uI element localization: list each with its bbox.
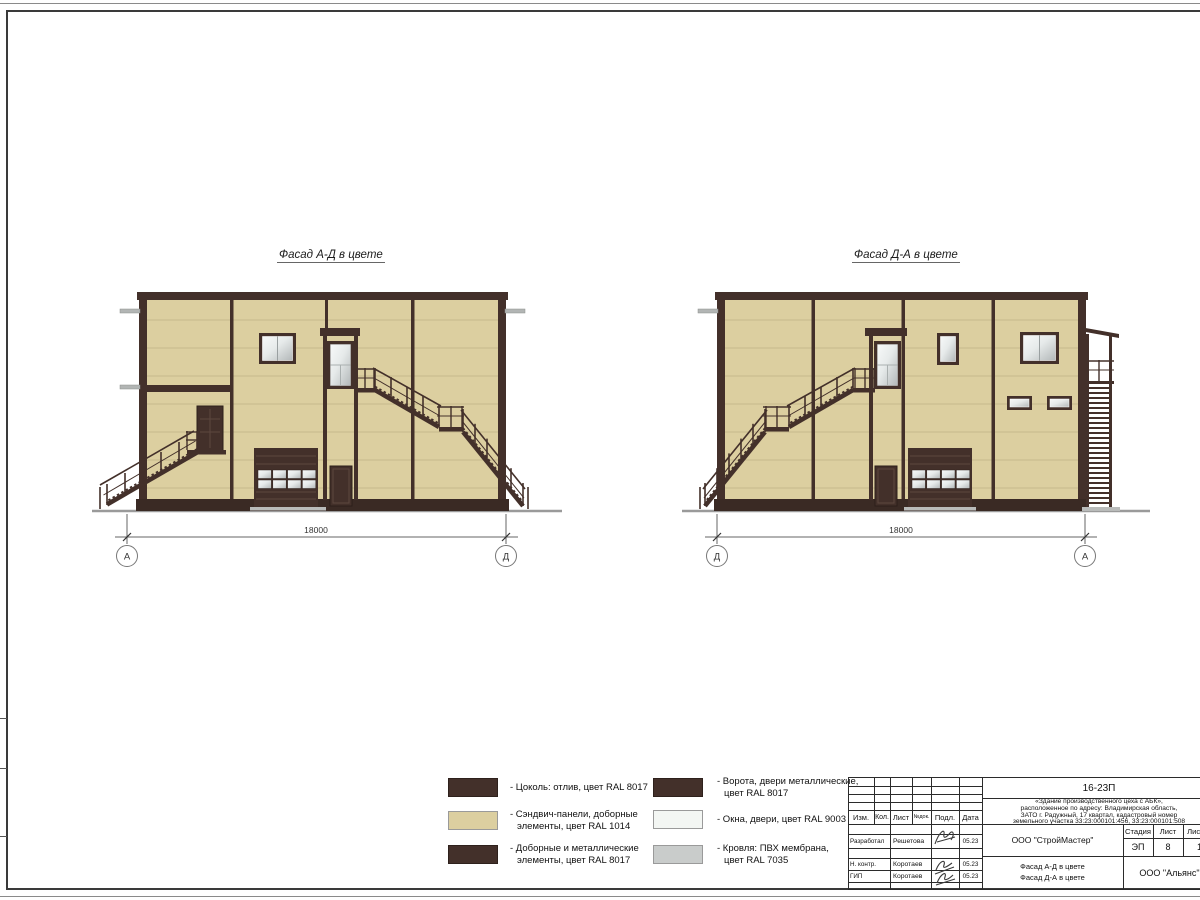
page-bottom-edge xyxy=(0,896,1200,897)
legend-label: - Цоколь: отлив, цвет RAL 8017 xyxy=(510,782,667,794)
legend-swatch-roof xyxy=(653,845,703,864)
signer-role: Н. контр. xyxy=(849,859,891,870)
drawing-sheet: Фасад А-Д в цвете Фасад Д-А в цвете xyxy=(0,0,1200,900)
list-value: 8 xyxy=(1153,838,1183,856)
dimension: 18000 А Д xyxy=(115,514,518,567)
org-designer: ООО "СтройМастер" xyxy=(982,824,1123,856)
legend-swatch-trim xyxy=(448,845,498,864)
facade-ad-drawing: 18000 А Д xyxy=(70,285,570,575)
signer-name: Коротаев xyxy=(891,859,933,870)
dimension-label: 18000 xyxy=(889,525,913,535)
entrance-door xyxy=(875,466,897,506)
org-client: ООО "Альянс" xyxy=(1123,856,1200,889)
door-canopy xyxy=(865,328,907,336)
fire-escape-ladder xyxy=(1080,327,1120,511)
margin-tick xyxy=(0,718,7,719)
corner-column xyxy=(1078,293,1085,503)
legend-swatch-gates xyxy=(653,778,703,797)
door-canopy xyxy=(320,328,360,336)
sheet-frame-top xyxy=(6,10,1200,12)
sheets-value: 1 xyxy=(1183,838,1200,856)
col-header-izm: Изм. xyxy=(848,810,874,824)
sheet-title: Фасад А-Д в цвете Фасад Д-А в цвете xyxy=(982,856,1123,889)
doc-number: 16-23П xyxy=(982,779,1200,797)
margin-tick xyxy=(0,768,7,769)
legend-swatch-windows xyxy=(653,810,703,829)
legend-label: - Сэндвич-панели, доборные элементы, цве… xyxy=(510,809,667,834)
dimension-label: 18000 xyxy=(304,525,328,535)
signer-role: ГИП xyxy=(849,871,891,882)
plinth xyxy=(714,499,1089,511)
flashing xyxy=(698,309,718,313)
axis-label: А xyxy=(124,552,131,563)
legend-label: - Доборные и металлические элементы, цве… xyxy=(510,843,667,868)
legend-swatch-panels xyxy=(448,811,498,830)
facade-da-drawing: 18000 Д А xyxy=(670,285,1170,575)
entrance-door xyxy=(330,466,352,506)
facade-da-title: Фасад Д-А в цвете xyxy=(852,249,960,263)
project-description: «Здание производственного цеха с АБК», р… xyxy=(982,799,1200,824)
col-header-kol: Кол. xyxy=(874,810,890,824)
gate xyxy=(904,448,976,511)
axis-label: Д xyxy=(503,552,510,563)
axis-label: Д xyxy=(714,552,721,563)
sheet-frame-left xyxy=(6,10,8,890)
dimension: 18000 Д А xyxy=(705,514,1097,567)
facade-ad-title: Фасад А-Д в цвете xyxy=(277,249,385,263)
signer-date: 05.23 xyxy=(959,835,982,847)
parapet-band xyxy=(715,292,1088,300)
signer-role: Разработал xyxy=(849,835,891,847)
page-top-edge xyxy=(0,3,1200,4)
stage-header: Стадия xyxy=(1123,825,1153,838)
window-second-floor xyxy=(259,333,296,364)
sheets-header: Листов xyxy=(1183,825,1200,838)
signature xyxy=(932,858,959,886)
col-header-list: Лист xyxy=(890,810,912,824)
building-body xyxy=(120,292,525,511)
signer-name: Коротаев xyxy=(891,871,933,882)
col-header-ndok: №док. xyxy=(912,810,931,824)
corner-column xyxy=(718,293,725,503)
window-small-vertical xyxy=(937,333,959,365)
signer-name: Решетова xyxy=(891,835,933,847)
col-header-podl: Подл. xyxy=(931,810,959,824)
list-header: Лист xyxy=(1153,825,1183,838)
legend-swatch-plinth xyxy=(448,778,498,797)
window-second-floor xyxy=(1020,332,1059,364)
gate xyxy=(250,448,326,511)
margin-tick xyxy=(0,836,7,837)
col-header-data: Дата xyxy=(959,810,982,824)
parapet-band xyxy=(137,292,508,300)
signer-date: 05.23 xyxy=(959,871,982,882)
signature xyxy=(932,826,959,848)
axis-label: А xyxy=(1082,552,1089,563)
signer-date: 05.23 xyxy=(959,859,982,870)
title-block: Изм. Кол. Лист №док. Подл. Дата Разработ… xyxy=(848,777,1200,890)
stage-value: ЭП xyxy=(1123,838,1153,856)
